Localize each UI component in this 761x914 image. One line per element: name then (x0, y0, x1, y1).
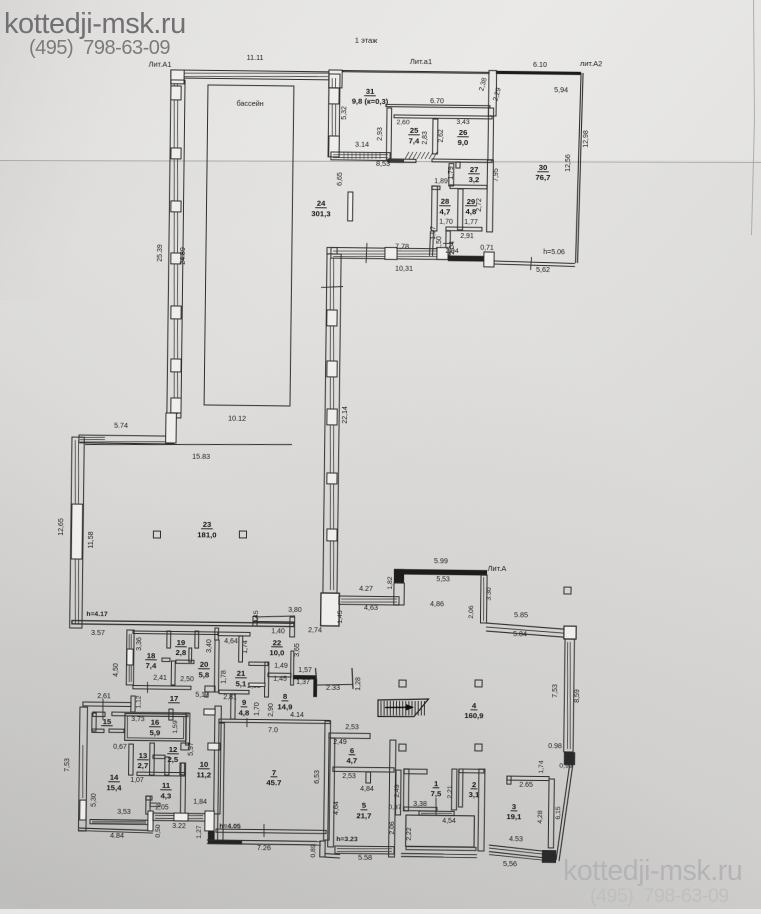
svg-text:2: 2 (472, 780, 476, 789)
svg-text:7,53: 7,53 (64, 758, 71, 772)
svg-text:6,65: 6,65 (337, 172, 344, 186)
svg-text:h=5.06: h=5.06 (543, 249, 565, 256)
svg-text:1,70: 1,70 (254, 702, 261, 716)
svg-text:3.30: 3.30 (486, 587, 493, 601)
svg-text:6,15: 6,15 (555, 806, 562, 820)
svg-text:3,2: 3,2 (469, 175, 480, 184)
svg-text:8,53: 8,53 (376, 159, 390, 168)
svg-text:2,53: 2,53 (342, 773, 356, 780)
svg-text:1,70: 1,70 (439, 219, 453, 226)
svg-text:2,49: 2,49 (333, 739, 347, 746)
svg-text:3,43: 3,43 (456, 119, 470, 126)
svg-text:Лит.А: Лит.А (488, 564, 507, 573)
svg-text:12,65: 12,65 (58, 518, 65, 536)
svg-text:3: 3 (512, 802, 516, 811)
svg-text:kottedji-msk.ru: kottedji-msk.ru (563, 855, 742, 887)
svg-text:14: 14 (110, 773, 119, 782)
svg-text:5,56: 5,56 (503, 859, 517, 868)
svg-text:2,06: 2,06 (468, 605, 475, 619)
svg-text:h=4.17: h=4.17 (86, 611, 108, 618)
svg-text:2,22: 2,22 (406, 827, 413, 841)
svg-text:7.0: 7.0 (268, 725, 278, 734)
svg-text:4,54: 4,54 (442, 818, 456, 825)
svg-text:21,7: 21,7 (356, 811, 371, 820)
svg-text:13: 13 (139, 751, 148, 760)
svg-text:5,9: 5,9 (149, 728, 160, 737)
svg-text:5.84: 5.84 (513, 629, 527, 638)
svg-text:1,82: 1,82 (387, 576, 394, 590)
svg-text:1,40: 1,40 (271, 628, 285, 635)
svg-text:4,7: 4,7 (439, 207, 450, 216)
svg-text:1,12: 1,12 (135, 695, 142, 709)
svg-text:kottedji-msk.ru: kottedji-msk.ru (4, 8, 186, 40)
svg-text:1,74: 1,74 (538, 760, 545, 774)
svg-text:0,67: 0,67 (113, 744, 127, 751)
svg-text:1,49: 1,49 (274, 663, 288, 670)
svg-text:5,1: 5,1 (235, 679, 247, 688)
svg-text:4,28: 4,28 (537, 810, 544, 824)
svg-text:22,14: 22,14 (342, 406, 349, 424)
svg-text:3,73: 3,73 (131, 716, 145, 723)
svg-text:6.10: 6.10 (533, 60, 547, 69)
svg-text:76,7: 76,7 (535, 173, 550, 182)
svg-text:5,8: 5,8 (198, 670, 210, 679)
svg-text:160,9: 160,9 (464, 711, 483, 720)
svg-text:15: 15 (103, 717, 112, 726)
svg-text:2,62: 2,62 (438, 129, 445, 143)
svg-text:5,94: 5,94 (554, 85, 568, 94)
svg-text:4,64: 4,64 (224, 638, 238, 645)
svg-text:19: 19 (177, 638, 186, 647)
svg-text:2,90: 2,90 (268, 703, 275, 717)
svg-text:0,50: 0,50 (155, 824, 162, 838)
svg-text:14,9: 14,9 (277, 702, 292, 711)
svg-text:2,64: 2,64 (445, 248, 459, 255)
svg-text:2,60: 2,60 (396, 119, 410, 126)
svg-text:5,17: 5,17 (195, 692, 209, 699)
svg-text:1,77: 1,77 (464, 219, 478, 226)
svg-text:25.39: 25.39 (157, 244, 164, 262)
svg-text:4,50: 4,50 (113, 663, 120, 677)
svg-text:3,36: 3,36 (136, 637, 143, 651)
svg-text:16: 16 (151, 718, 160, 727)
svg-text:3,40: 3,40 (206, 639, 213, 653)
svg-text:7,95: 7,95 (493, 168, 500, 182)
svg-text:2,74: 2,74 (308, 625, 322, 634)
svg-text:4,7: 4,7 (346, 756, 357, 765)
svg-text:4.14: 4.14 (290, 712, 304, 719)
svg-text:0,89: 0,89 (310, 844, 317, 858)
svg-text:3.22: 3.22 (172, 823, 186, 830)
svg-text:11.11: 11.11 (247, 53, 264, 62)
svg-text:3,53: 3,53 (117, 809, 131, 816)
svg-text:2,06: 2,06 (389, 821, 396, 835)
svg-text:(495) 798-63-09: (495) 798-63-09 (29, 37, 170, 59)
svg-text:0,71: 0,71 (480, 245, 494, 252)
svg-text:7,53: 7,53 (552, 684, 559, 698)
svg-text:11: 11 (162, 781, 171, 790)
svg-text:5,97: 5,97 (188, 742, 195, 756)
svg-text:7: 7 (272, 768, 276, 777)
svg-text:2.65: 2.65 (519, 782, 533, 789)
svg-text:1,07: 1,07 (130, 777, 144, 784)
svg-text:4,8: 4,8 (239, 708, 251, 717)
svg-text:0,99: 0,99 (559, 763, 573, 770)
svg-text:1,57: 1,57 (298, 667, 312, 674)
svg-text:45.7: 45.7 (266, 778, 281, 787)
svg-text:12,56: 12,56 (565, 154, 572, 172)
svg-text:10,0: 10,0 (269, 648, 284, 657)
svg-text:5,32: 5,32 (341, 106, 348, 120)
svg-text:10,31: 10,31 (395, 264, 413, 273)
svg-text:26: 26 (459, 128, 468, 137)
svg-text:1,78: 1,78 (221, 670, 228, 684)
svg-text:21: 21 (237, 669, 246, 678)
svg-text:31: 31 (366, 87, 375, 96)
svg-text:5,30: 5,30 (91, 793, 98, 807)
svg-text:3,65: 3,65 (294, 643, 301, 657)
svg-text:4,86: 4,86 (430, 599, 444, 608)
svg-text:10: 10 (200, 760, 209, 769)
svg-text:29: 29 (467, 197, 476, 206)
svg-text:24: 24 (317, 199, 326, 208)
svg-text:7,4: 7,4 (409, 136, 421, 145)
svg-text:2,7: 2,7 (137, 761, 148, 770)
svg-text:19,1: 19,1 (506, 812, 522, 821)
svg-text:5.99: 5.99 (434, 556, 448, 565)
svg-text:2,8: 2,8 (175, 648, 187, 657)
svg-text:22: 22 (273, 638, 282, 647)
svg-text:11,2: 11,2 (197, 770, 212, 779)
svg-text:4.53: 4.53 (509, 834, 523, 843)
svg-text:2,72: 2,72 (476, 198, 483, 212)
svg-text:12: 12 (169, 745, 178, 754)
svg-text:1,45: 1,45 (337, 610, 344, 624)
svg-text:Лит.а1: Лит.а1 (410, 57, 432, 66)
svg-text:2,50: 2,50 (180, 676, 194, 683)
svg-text:Лит.А1: Лит.А1 (148, 60, 171, 69)
svg-text:7,4: 7,4 (145, 661, 157, 670)
svg-text:5,53: 5,53 (436, 576, 450, 583)
svg-text:4,3: 4,3 (161, 791, 172, 800)
svg-text:181,0: 181,0 (197, 530, 216, 539)
svg-text:10.12: 10.12 (228, 414, 246, 423)
svg-text:27: 27 (470, 165, 479, 174)
svg-text:0.98: 0.98 (548, 743, 562, 750)
svg-text:25: 25 (410, 126, 419, 135)
svg-text:(495) 798-63-09: (495) 798-63-09 (590, 885, 729, 907)
svg-text:1,79: 1,79 (448, 166, 455, 180)
svg-text:5.85: 5.85 (514, 610, 528, 619)
svg-text:1,59: 1,59 (172, 720, 179, 734)
svg-text:2,41: 2,41 (153, 675, 167, 682)
svg-text:1,27: 1,27 (196, 825, 203, 839)
svg-text:2,61: 2,61 (97, 693, 111, 700)
svg-text:2,21: 2,21 (447, 785, 454, 799)
svg-text:18: 18 (147, 651, 156, 660)
svg-text:2,91: 2,91 (460, 233, 474, 240)
svg-text:4.27: 4.27 (359, 584, 373, 593)
svg-text:7,5: 7,5 (431, 789, 443, 798)
svg-text:1,37: 1,37 (296, 679, 310, 686)
svg-text:6.70: 6.70 (430, 96, 444, 105)
svg-text:12,98: 12,98 (583, 130, 590, 148)
svg-text:1,84: 1,84 (193, 799, 207, 806)
svg-text:бассейн: бассейн (236, 99, 263, 108)
svg-text:6: 6 (350, 746, 354, 755)
svg-text:лит.А2: лит.А2 (580, 59, 603, 68)
svg-text:2,05: 2,05 (155, 804, 169, 811)
svg-text:1,89: 1,89 (434, 178, 448, 185)
svg-text:9: 9 (242, 698, 246, 707)
svg-text:9,0: 9,0 (458, 138, 469, 147)
svg-text:2,49: 2,49 (394, 784, 401, 798)
svg-text:2,93: 2,93 (377, 127, 384, 141)
svg-text:4,64: 4,64 (333, 801, 340, 815)
svg-text:5.58: 5.58 (358, 853, 372, 862)
svg-text:3.57: 3.57 (91, 628, 105, 637)
svg-text:28: 28 (441, 197, 450, 206)
svg-text:3,80: 3,80 (288, 607, 302, 614)
svg-text:23: 23 (203, 520, 212, 529)
svg-text:1,28: 1,28 (355, 677, 362, 691)
svg-text:24.89: 24.89 (180, 247, 187, 265)
svg-text:6,53: 6,53 (314, 770, 321, 784)
svg-text:17: 17 (170, 694, 179, 703)
svg-text:7,78: 7,78 (395, 242, 409, 251)
svg-text:2.33: 2.33 (326, 683, 340, 692)
svg-text:15,4: 15,4 (106, 783, 122, 792)
svg-text:15.83: 15.83 (192, 452, 210, 461)
svg-text:5,62: 5,62 (536, 265, 550, 274)
svg-text:30: 30 (539, 163, 548, 172)
svg-text:20: 20 (200, 660, 209, 669)
svg-text:4,63: 4,63 (364, 603, 378, 612)
svg-text:3.14: 3.14 (355, 140, 369, 149)
svg-text:9,8 (к=0,3): 9,8 (к=0,3) (352, 97, 389, 106)
svg-text:301,3: 301,3 (311, 209, 330, 218)
svg-text:5.74: 5.74 (114, 421, 128, 430)
svg-text:4.84: 4.84 (110, 831, 124, 840)
svg-text:7.26: 7.26 (257, 843, 271, 852)
svg-text:h=3.23: h=3.23 (336, 836, 358, 843)
svg-text:2,83: 2,83 (422, 131, 429, 145)
svg-text:2,53: 2,53 (345, 724, 359, 731)
svg-text:11,58: 11,58 (88, 531, 95, 548)
svg-text:4,84: 4,84 (360, 786, 374, 793)
svg-text:1 этаж: 1 этаж (355, 36, 378, 45)
svg-text:8,59: 8,59 (574, 689, 581, 703)
